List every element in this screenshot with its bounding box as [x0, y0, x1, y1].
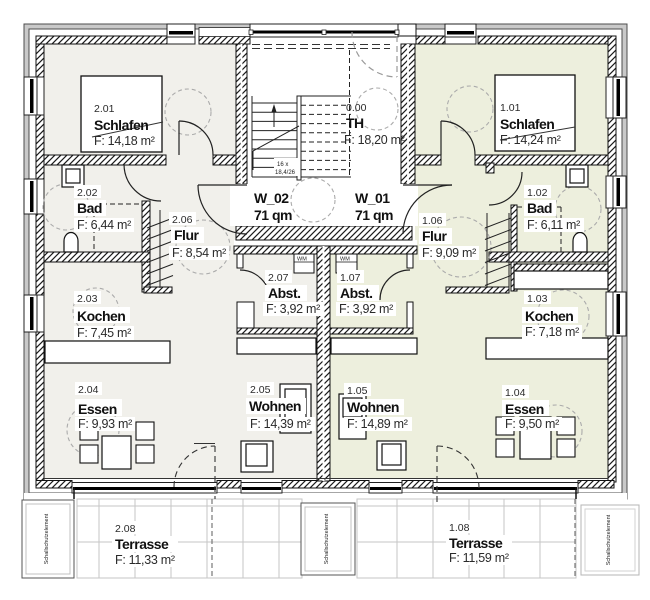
- svg-text:Terrasse: Terrasse: [449, 535, 503, 551]
- svg-text:Bad: Bad: [77, 200, 102, 216]
- svg-text:Abst.: Abst.: [340, 285, 373, 301]
- svg-text:Bad: Bad: [527, 200, 552, 216]
- svg-text:WM: WM: [297, 257, 307, 263]
- svg-text:F: 14,39 m²: F: 14,39 m²: [250, 417, 311, 431]
- svg-text:Schlafen: Schlafen: [500, 116, 554, 132]
- svg-text:1.02: 1.02: [527, 187, 548, 199]
- svg-text:1.06: 1.06: [422, 215, 443, 227]
- svg-text:F: 14,89 m²: F: 14,89 m²: [347, 417, 408, 431]
- svg-text:F: 9,93 m²: F: 9,93 m²: [78, 417, 132, 431]
- svg-text:1.05: 1.05: [347, 385, 368, 397]
- svg-text:2.08: 2.08: [115, 523, 136, 535]
- svg-text:F: 3,92 m²: F: 3,92 m²: [339, 302, 393, 316]
- svg-text:F: 9,09 m²: F: 9,09 m²: [422, 246, 476, 260]
- svg-text:Flur: Flur: [174, 227, 199, 243]
- svg-text:2.05: 2.05: [250, 384, 271, 396]
- svg-text:Schallschutzelement: Schallschutzelement: [324, 513, 330, 564]
- svg-text:F: 14,18 m²: F: 14,18 m²: [94, 134, 155, 148]
- svg-text:F: 9,50 m²: F: 9,50 m²: [505, 417, 559, 431]
- svg-text:F: 6,44 m²: F: 6,44 m²: [77, 218, 131, 232]
- svg-text:F: 7,18 m²: F: 7,18 m²: [525, 325, 579, 339]
- svg-text:Flur: Flur: [422, 228, 447, 244]
- svg-text:2.03: 2.03: [77, 293, 98, 305]
- svg-text:F: 14,24 m²: F: 14,24 m²: [500, 133, 561, 147]
- svg-text:Wohnen: Wohnen: [347, 399, 399, 415]
- svg-text:0.00: 0.00: [346, 102, 367, 114]
- svg-text:Essen: Essen: [78, 401, 117, 417]
- svg-text:Schlafen: Schlafen: [94, 117, 148, 133]
- svg-text:1.01: 1.01: [500, 102, 521, 114]
- svg-text:Abst.: Abst.: [268, 285, 301, 301]
- svg-text:2.04: 2.04: [78, 384, 99, 396]
- svg-text:1.04: 1.04: [505, 387, 526, 399]
- svg-text:Schallschutzelement: Schallschutzelement: [44, 513, 50, 564]
- svg-text:F: 3,92 m²: F: 3,92 m²: [266, 302, 320, 316]
- svg-text:F: 8,54 m²: F: 8,54 m²: [172, 246, 226, 260]
- svg-text:Essen: Essen: [505, 401, 544, 417]
- svg-text:F: 7,45 m²: F: 7,45 m²: [77, 326, 131, 340]
- svg-text:16 x: 16 x: [277, 162, 288, 168]
- svg-text:W_01: W_01: [355, 190, 390, 206]
- svg-text:71 qm: 71 qm: [254, 207, 292, 223]
- svg-text:F: 11,33 m²: F: 11,33 m²: [115, 553, 175, 567]
- svg-text:1.07: 1.07: [340, 272, 361, 284]
- svg-text:WM: WM: [340, 257, 350, 263]
- svg-text:TH: TH: [346, 115, 364, 131]
- svg-text:2.02: 2.02: [77, 187, 98, 199]
- svg-text:2.06: 2.06: [172, 214, 193, 226]
- svg-text:2.07: 2.07: [268, 272, 289, 284]
- svg-text:2.01: 2.01: [94, 103, 115, 115]
- svg-text:Terrasse: Terrasse: [115, 536, 169, 552]
- svg-text:1.08: 1.08: [449, 522, 470, 534]
- svg-text:Schallschutzelement: Schallschutzelement: [606, 514, 612, 565]
- svg-text:Kochen: Kochen: [77, 308, 125, 324]
- svg-text:Kochen: Kochen: [525, 308, 573, 324]
- svg-text:F: 18,20 m²: F: 18,20 m²: [344, 133, 405, 147]
- svg-text:1.03: 1.03: [527, 293, 548, 305]
- svg-text:W_02: W_02: [254, 190, 289, 206]
- svg-text:Wohnen: Wohnen: [249, 398, 301, 414]
- svg-text:F: 11,59 m²: F: 11,59 m²: [449, 551, 509, 565]
- svg-text:F: 6,11 m²: F: 6,11 m²: [527, 218, 580, 232]
- svg-text:18,4/26: 18,4/26: [275, 170, 296, 176]
- svg-text:71 qm: 71 qm: [355, 207, 393, 223]
